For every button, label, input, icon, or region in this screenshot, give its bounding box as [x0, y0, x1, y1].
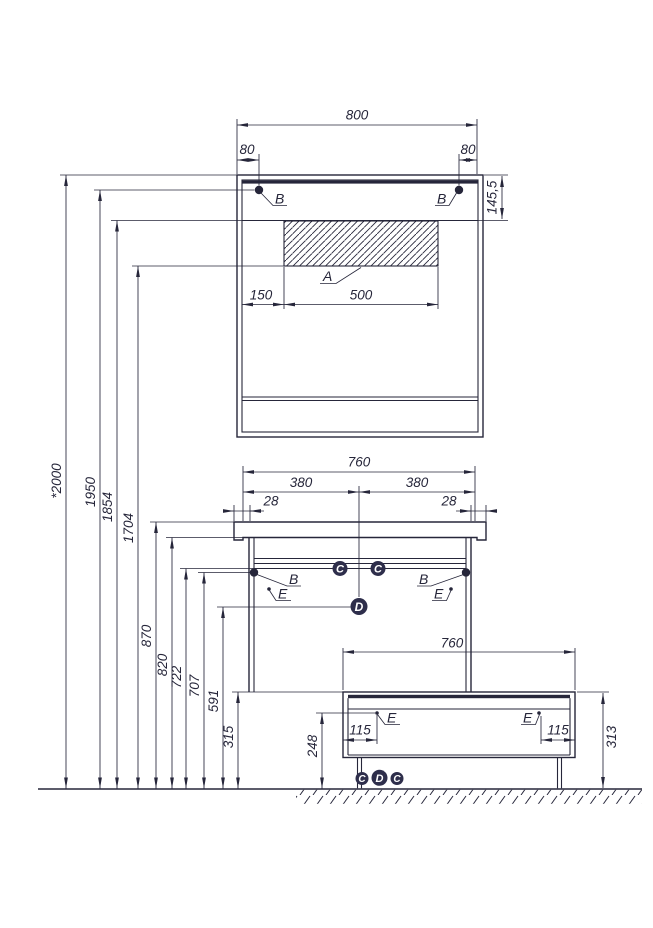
bench-cabinet: E E C D C: [343, 692, 575, 788]
dim-height-315: 315: [221, 725, 236, 748]
ground-hatch: [296, 790, 642, 804]
installation-drawing: B B A B B C C D E E: [0, 0, 653, 928]
dim-height-1854: 1854: [100, 492, 115, 522]
dim-vanity-span-right: 380: [406, 475, 429, 490]
label-b-vanity-left: B: [289, 571, 298, 587]
dim-height-1704: 1704: [121, 513, 136, 543]
label-e-vanity-left: E: [278, 586, 288, 602]
dim-fastener-offset-left: 80: [239, 142, 255, 157]
dim-height-707: 707: [187, 674, 202, 697]
dim-height-722: 722: [169, 665, 184, 688]
mounting-zone-a-hatch: [284, 221, 438, 266]
dim-zone-width: 500: [350, 288, 373, 303]
dim-mirror-top-height: 145,5: [485, 180, 500, 214]
mirror-cabinet-top-band: [242, 181, 478, 184]
hinge-point-e-bench-left: [375, 711, 379, 715]
fastener-point-b-vanity-left: [250, 568, 258, 576]
dim-height-870: 870: [139, 624, 154, 647]
drawing-page: B B A B B C C D E E: [0, 0, 653, 928]
dim-vanity-overhang-right: 28: [440, 494, 457, 509]
label-e-bench-right: E: [523, 710, 533, 726]
dim-vanity-span-left: 380: [290, 475, 313, 490]
hinge-point-e-vanity-left: [267, 587, 271, 591]
dim-bench-width: 760: [441, 636, 464, 651]
label-b-mirror-left: B: [275, 191, 284, 207]
hinge-point-e-bench-right: [537, 711, 541, 715]
dim-height-591: 591: [206, 690, 221, 713]
floor-badge-c-left-label: C: [358, 774, 366, 785]
fitting-badge-c-right-label: C: [374, 564, 383, 576]
label-a-zone: A: [322, 268, 332, 284]
dim-height-248: 248: [305, 734, 320, 758]
label-b-mirror-right: B: [437, 191, 446, 207]
bench-top-band: [348, 695, 570, 698]
dim-bench-height: 313: [604, 725, 619, 748]
dim-bench-leg-inset-left: 115: [349, 723, 371, 738]
mirror-cabinet-inner: [242, 180, 478, 432]
floor-badge-d-label: D: [376, 773, 384, 785]
label-e-vanity-right: E: [434, 586, 444, 602]
vanity-countertop: [234, 522, 486, 540]
dim-vanity-width: 760: [348, 455, 371, 470]
dim-zone-offset: 150: [250, 288, 273, 303]
fastener-point-b-left: [255, 186, 263, 194]
ground: [38, 789, 642, 804]
floor-badge-c-right-label: C: [393, 774, 401, 785]
dim-bench-leg-inset-right: 115: [547, 723, 569, 738]
fastener-point-b-vanity-right: [462, 568, 470, 576]
mirror-cabinet: B B A: [237, 175, 483, 437]
mirror-cabinet-outline: [237, 175, 483, 437]
dim-height-820: 820: [155, 653, 170, 676]
fitting-badge-c-left-label: C: [336, 564, 345, 576]
label-e-bench-left: E: [387, 710, 397, 726]
hinge-point-e-vanity-right: [449, 587, 453, 591]
fitting-badge-d-label: D: [355, 600, 364, 614]
dim-mirror-width: 800: [346, 108, 369, 123]
bench-outline: [343, 692, 575, 758]
dimension-labels: 800 80 80 145,5 150 500 *2000 1950 1854 …: [49, 108, 619, 759]
dim-height-overall: *2000: [49, 463, 64, 499]
dim-fastener-offset-right: 80: [460, 142, 476, 157]
dim-vanity-overhang-left: 28: [262, 494, 279, 509]
label-b-vanity-right: B: [419, 571, 428, 587]
dim-height-1950: 1950: [83, 476, 98, 507]
